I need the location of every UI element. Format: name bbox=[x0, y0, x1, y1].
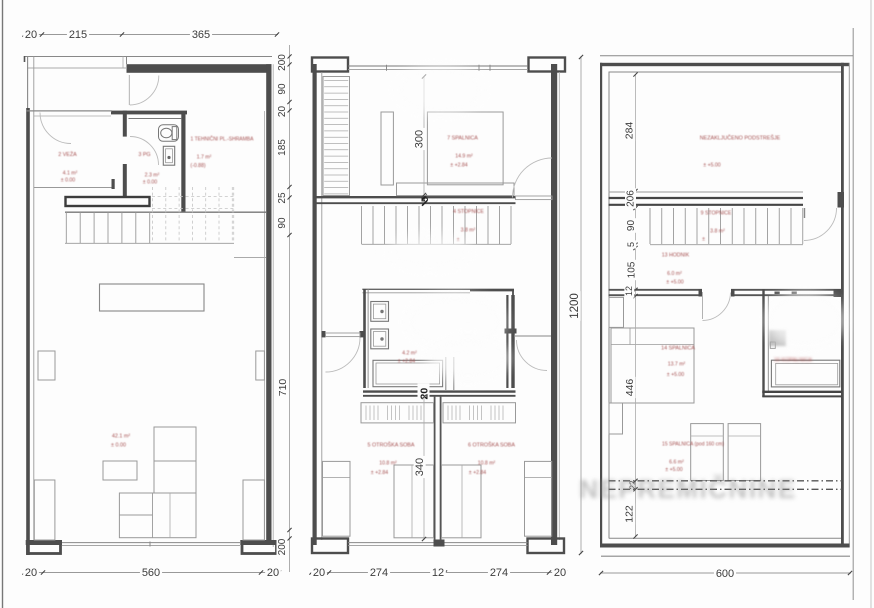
svg-text:122: 122 bbox=[624, 505, 636, 523]
svg-text:20: 20 bbox=[267, 567, 279, 579]
svg-text:6.0 m²: 6.0 m² bbox=[667, 271, 682, 277]
svg-text:300: 300 bbox=[414, 130, 426, 148]
svg-text:± +5.00: ± +5.00 bbox=[703, 163, 721, 169]
svg-text:3.8 m²: 3.8 m² bbox=[710, 229, 725, 235]
svg-text:90: 90 bbox=[626, 220, 637, 232]
svg-text:±: ± bbox=[702, 237, 705, 243]
svg-text:4.2 m²: 4.2 m² bbox=[402, 351, 417, 357]
svg-text:± +2.84: ± +2.84 bbox=[469, 470, 487, 476]
svg-text:42.1 m²: 42.1 m² bbox=[112, 434, 130, 440]
svg-text:9 STOPNICE: 9 STOPNICE bbox=[701, 211, 732, 217]
svg-text:6 OTROŠKA SOBA: 6 OTROŠKA SOBA bbox=[468, 442, 515, 449]
svg-text:13.7 m²: 13.7 m² bbox=[668, 362, 686, 368]
svg-text:284: 284 bbox=[624, 122, 636, 140]
svg-text:274: 274 bbox=[370, 567, 388, 579]
svg-text:20: 20 bbox=[313, 567, 325, 579]
svg-text:2 VEŽA: 2 VEŽA bbox=[58, 150, 77, 158]
svg-text:2.3 m²: 2.3 m² bbox=[145, 173, 160, 179]
svg-text:± +2.84: ± +2.84 bbox=[371, 470, 389, 476]
svg-text:1200: 1200 bbox=[569, 293, 581, 319]
svg-text:3.8 m²: 3.8 m² bbox=[461, 228, 476, 234]
svg-text:446: 446 bbox=[624, 379, 636, 397]
svg-text:215: 215 bbox=[69, 29, 87, 41]
svg-text:± 0.00: ± 0.00 bbox=[111, 443, 126, 449]
svg-text:1 TEHNIČNI PL.-SHRAMBA: 1 TEHNIČNI PL.-SHRAMBA bbox=[191, 136, 255, 143]
svg-text:16 KOPALNICA: 16 KOPALNICA bbox=[774, 358, 812, 364]
svg-text:± +5.00: ± +5.00 bbox=[667, 372, 685, 378]
svg-text:± 0.00: ± 0.00 bbox=[61, 178, 75, 184]
svg-text:± +2.84: ± +2.84 bbox=[450, 163, 468, 169]
svg-text:340: 340 bbox=[414, 458, 426, 476]
svg-text:6.6 m²: 6.6 m² bbox=[669, 460, 684, 466]
svg-text:20: 20 bbox=[25, 567, 37, 579]
svg-text:10.8 m²: 10.8 m² bbox=[478, 461, 496, 467]
svg-text:1.7 m²: 1.7 m² bbox=[197, 155, 212, 161]
svg-text:± +2.84: ± +2.84 bbox=[398, 359, 416, 365]
svg-text:20: 20 bbox=[277, 106, 288, 118]
svg-text:710: 710 bbox=[277, 379, 289, 397]
svg-text:365: 365 bbox=[192, 29, 210, 41]
svg-text:185: 185 bbox=[277, 139, 288, 156]
svg-text:5 OTROŠKA SOBA: 5 OTROŠKA SOBA bbox=[367, 442, 414, 449]
svg-text:105: 105 bbox=[627, 261, 638, 278]
svg-text:25: 25 bbox=[277, 192, 288, 204]
svg-text:± +5.00: ± +5.00 bbox=[666, 280, 684, 286]
svg-text:± +5.00: ± +5.00 bbox=[665, 467, 683, 473]
svg-text:NEZAKLJUČENO PODSTREŠJE: NEZAKLJUČENO PODSTREŠJE bbox=[700, 135, 781, 142]
svg-text:15 SPALNICA (pod 160 cm): 15 SPALNICA (pod 160 cm) bbox=[662, 442, 724, 448]
svg-text:90: 90 bbox=[277, 83, 288, 95]
svg-text:13 HODNIK: 13 HODNIK bbox=[662, 253, 690, 259]
svg-text:3 PG: 3 PG bbox=[138, 152, 150, 158]
svg-text:20: 20 bbox=[25, 29, 37, 41]
svg-text:NEPREMIČNINE: NEPREMIČNINE bbox=[579, 474, 796, 504]
svg-text:12: 12 bbox=[432, 567, 444, 579]
svg-text:12: 12 bbox=[624, 286, 634, 296]
svg-text:14 SPALNICA: 14 SPALNICA bbox=[661, 346, 695, 352]
svg-text:200: 200 bbox=[277, 54, 288, 71]
svg-text:206: 206 bbox=[626, 190, 637, 207]
svg-text:20: 20 bbox=[554, 567, 566, 579]
svg-text:± 0.00: ± 0.00 bbox=[143, 180, 157, 186]
svg-text:600: 600 bbox=[716, 568, 734, 580]
svg-text:274: 274 bbox=[490, 567, 508, 579]
svg-text:4.1 m²: 4.1 m² bbox=[63, 171, 78, 177]
svg-text:4 STOPNICE: 4 STOPNICE bbox=[453, 209, 484, 215]
svg-text:10.8 m²: 10.8 m² bbox=[379, 461, 397, 467]
svg-text:(-0.88): (-0.88) bbox=[190, 163, 206, 169]
svg-text:7 SPALNICA: 7 SPALNICA bbox=[447, 136, 478, 142]
svg-text:90: 90 bbox=[277, 217, 288, 229]
svg-text:14.9 m²: 14.9 m² bbox=[455, 154, 473, 160]
svg-text:200: 200 bbox=[277, 538, 288, 555]
svg-text:5: 5 bbox=[626, 242, 636, 247]
svg-text:560: 560 bbox=[142, 567, 160, 579]
